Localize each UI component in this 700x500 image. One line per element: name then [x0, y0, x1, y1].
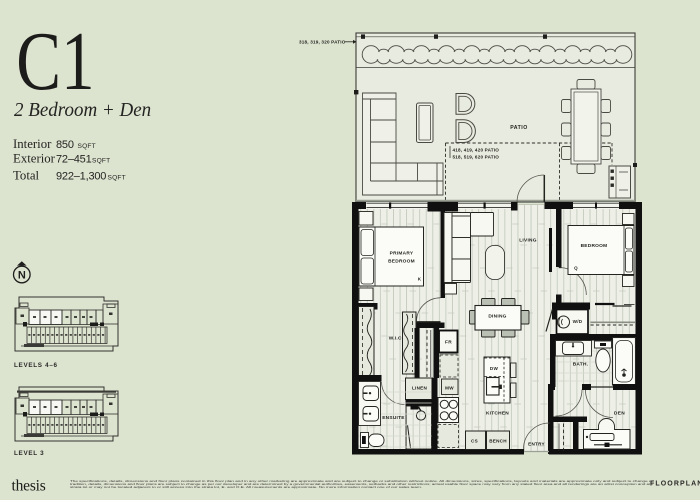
svg-text:Total: Total [13, 169, 40, 183]
svg-text:LEVEL 3: LEVEL 3 [14, 450, 44, 457]
svg-text:FLOORPLANS: FLOORPLANS [650, 481, 700, 488]
svg-text:W.I.C.: W.I.C. [389, 336, 404, 342]
svg-text:CS: CS [471, 439, 478, 444]
svg-text:K: K [418, 277, 422, 282]
svg-text:ENSUITE: ENSUITE [382, 415, 405, 421]
svg-text:PRIMARY: PRIMARY [390, 251, 414, 257]
svg-text:SQFT: SQFT [108, 175, 126, 182]
svg-text:N: N [18, 270, 26, 282]
svg-text:Interior: Interior [13, 137, 52, 151]
svg-text:Exterior: Exterior [13, 152, 56, 166]
svg-text:LIVING: LIVING [519, 238, 537, 244]
svg-text:2 Bedroom + Den: 2 Bedroom + Den [14, 100, 151, 122]
svg-text:KITCHEN: KITCHEN [486, 411, 509, 417]
svg-text:DEN: DEN [614, 411, 625, 417]
svg-text:BEDROOM: BEDROOM [388, 259, 415, 265]
svg-text:518, 519, 620 PATIO: 518, 519, 620 PATIO [453, 155, 500, 160]
svg-text:418, 419, 420 PATIO: 418, 419, 420 PATIO [453, 148, 500, 153]
svg-text:MW: MW [445, 386, 454, 391]
svg-text:BENCH: BENCH [489, 439, 507, 444]
svg-text:C1: C1 [16, 15, 94, 108]
svg-text:850: 850 [56, 139, 74, 151]
svg-text:BATH.: BATH. [573, 362, 589, 368]
svg-text:DINING: DINING [488, 314, 506, 320]
svg-text:922–1,300: 922–1,300 [56, 171, 106, 183]
svg-text:ENTRY: ENTRY [528, 442, 545, 447]
svg-text:LEVELS 4–6: LEVELS 4–6 [14, 362, 58, 369]
svg-text:strata lot or may not be locat: strata lot or may not be located adjacen… [70, 485, 422, 489]
svg-text:thesis: thesis [12, 478, 46, 495]
svg-text:318, 319, 320 PATIO: 318, 319, 320 PATIO [299, 40, 346, 45]
svg-text:W/D: W/D [573, 319, 583, 324]
svg-text:72–451: 72–451 [56, 154, 92, 166]
svg-text:LINEN: LINEN [412, 386, 427, 391]
svg-text:BEDROOM: BEDROOM [581, 243, 608, 249]
svg-text:FR: FR [445, 340, 452, 346]
svg-text:DW: DW [490, 366, 499, 371]
svg-text:PATIO: PATIO [510, 125, 528, 131]
svg-text:Q: Q [574, 266, 578, 271]
svg-text:SQFT: SQFT [92, 158, 110, 165]
svg-text:SQFT: SQFT [78, 143, 96, 150]
